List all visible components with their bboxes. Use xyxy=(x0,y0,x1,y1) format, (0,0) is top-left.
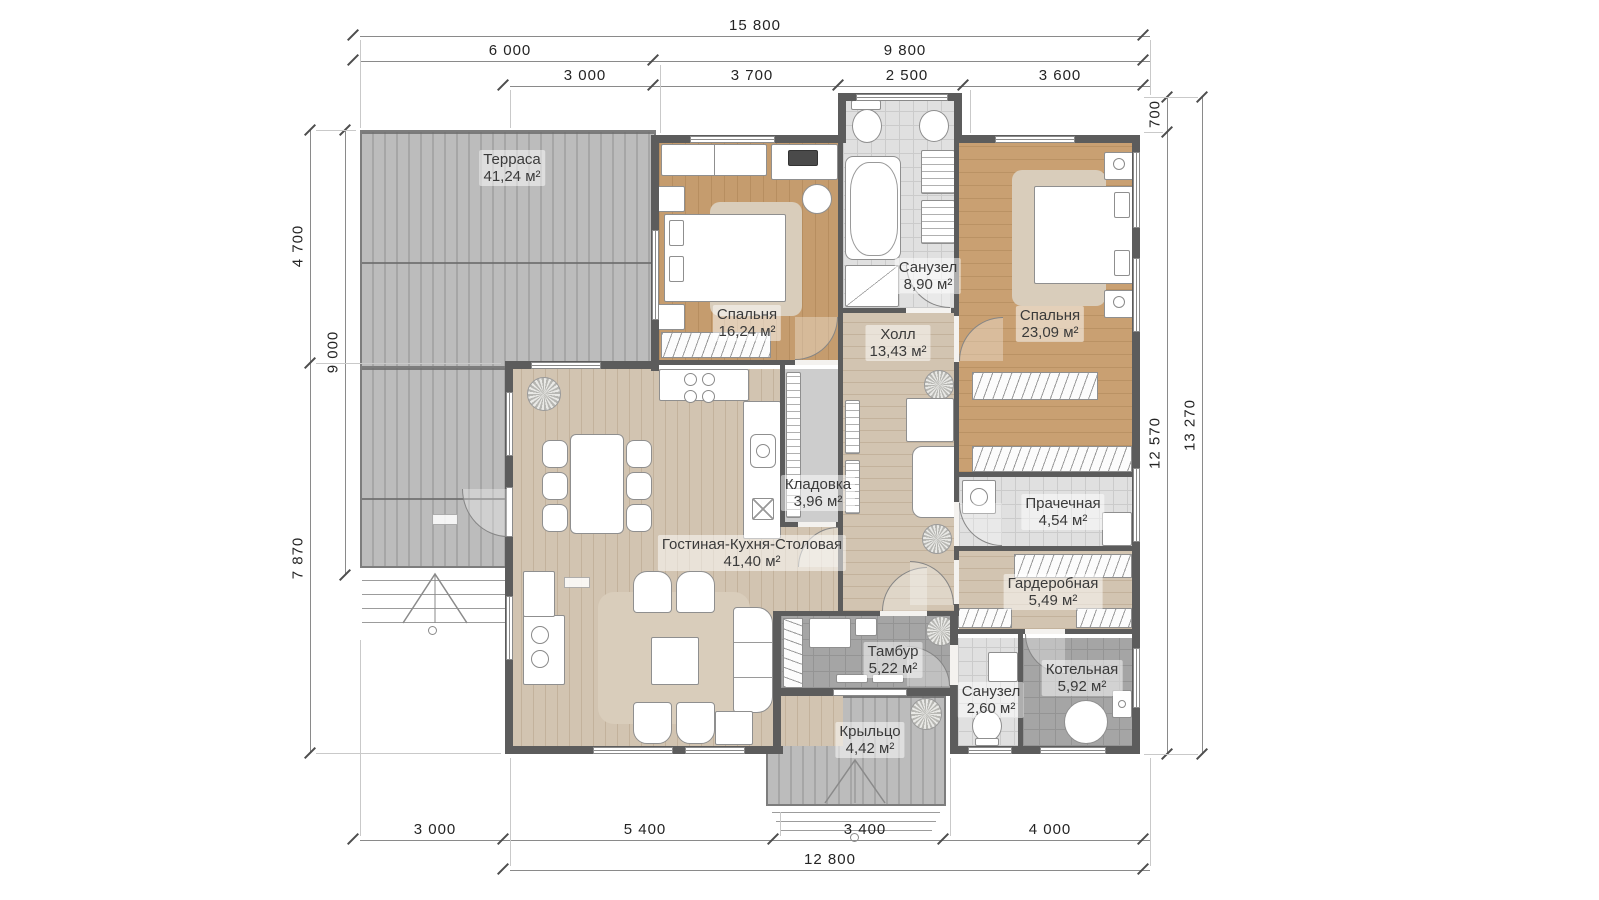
living-armchair xyxy=(633,702,672,744)
dimension-line xyxy=(1202,97,1203,754)
living-armchair xyxy=(676,702,715,744)
bedroom1-pillow xyxy=(669,220,684,246)
room-area: 8,90 м² xyxy=(899,276,957,293)
extension-line xyxy=(360,40,361,128)
stove-burner xyxy=(684,390,697,403)
bathroom1-cabinet xyxy=(921,200,955,244)
dim-tick xyxy=(1137,54,1149,66)
window xyxy=(652,230,659,320)
terrace-deck-lower xyxy=(360,366,507,568)
bedroom1-pillow xyxy=(669,256,684,282)
living-sofa xyxy=(733,607,773,713)
terrace-steps-arrow xyxy=(400,570,470,626)
room-name: Тамбур xyxy=(868,643,919,660)
wall xyxy=(773,611,781,754)
dim-tick xyxy=(937,833,949,845)
bathroom1-cabinet xyxy=(921,150,955,194)
dim-tick xyxy=(347,29,359,41)
floor-plan-page: { "plan": { "rooms": { "terrace": {"name… xyxy=(0,0,1599,900)
extension-line xyxy=(316,363,501,364)
extension-line xyxy=(316,753,501,754)
extension-line xyxy=(1144,132,1163,133)
room-label-laundry: Прачечная 4,54 м² xyxy=(1021,494,1104,530)
dimension-text: 3 400 xyxy=(844,821,887,838)
dimension-line xyxy=(1167,97,1168,754)
room-area: 4,42 м² xyxy=(839,740,900,757)
porch-step xyxy=(772,812,940,813)
room-name: Крыльцо xyxy=(839,723,900,740)
door-opening xyxy=(954,316,959,362)
room-area: 5,49 м² xyxy=(1008,592,1099,609)
extension-line xyxy=(360,640,361,836)
bidet-bowl xyxy=(919,110,949,142)
room-label-wardrobe: Гардеробная 5,49 м² xyxy=(1004,574,1103,610)
dimension-text: 4 000 xyxy=(1029,821,1072,838)
dining-chair xyxy=(542,440,568,468)
hall-armchair xyxy=(912,446,958,518)
dimension-text: 9 800 xyxy=(884,42,927,59)
window xyxy=(1133,152,1140,228)
dimension-line xyxy=(345,130,346,575)
elevation-marker xyxy=(564,577,590,588)
room-label-terrace: Терраса 41,24 м² xyxy=(479,150,545,186)
entry-door-opening xyxy=(833,689,907,696)
extension-line xyxy=(950,758,951,836)
dim-tick xyxy=(647,79,659,91)
room-label-porch: Крыльцо 4,42 м² xyxy=(835,722,904,758)
wall xyxy=(838,143,843,365)
room-label-hall: Холл 13,43 м² xyxy=(865,325,930,361)
boiler-tank xyxy=(1064,700,1108,744)
dim-tick xyxy=(767,833,779,845)
dining-table xyxy=(570,434,624,534)
porch-plant-right xyxy=(910,698,942,730)
window xyxy=(685,747,745,754)
living-plant xyxy=(527,377,561,411)
window xyxy=(1133,468,1140,542)
bathroom2-toilet-tank xyxy=(975,738,999,746)
wall xyxy=(954,546,1134,551)
dimension-text: 9 000 xyxy=(325,331,342,374)
dim-tick xyxy=(497,863,509,875)
stove-ring xyxy=(531,626,549,644)
window xyxy=(995,136,1075,143)
dim-tick xyxy=(497,833,509,845)
bedroom2-lamp xyxy=(1113,296,1125,308)
hall-cabinet xyxy=(906,398,954,442)
dim-tick xyxy=(957,79,969,91)
dim-tick xyxy=(497,79,509,91)
dimension-text: 4 700 xyxy=(290,225,307,268)
bedroom2-pillow xyxy=(1114,192,1130,218)
hall-plant-top xyxy=(924,370,954,400)
extension-line xyxy=(1150,758,1151,866)
wall xyxy=(773,611,958,616)
dimension-text: 3 000 xyxy=(564,67,607,84)
hall-plant-bottom xyxy=(922,524,952,554)
door-opening xyxy=(954,502,959,546)
room-label-bedroom2: Спальня 23,09 м² xyxy=(1016,306,1084,342)
fridge xyxy=(752,498,774,520)
dim-tick xyxy=(347,54,359,66)
side-table xyxy=(715,711,753,745)
dimension-text: 12 800 xyxy=(804,851,856,868)
room-label-bathroom2: Санузел 2,60 м² xyxy=(958,682,1024,718)
window xyxy=(531,362,601,369)
laundry-counter xyxy=(1102,512,1132,546)
dining-chair xyxy=(542,472,568,500)
bedroom2-pillow xyxy=(1114,250,1130,276)
door-opening xyxy=(798,522,836,527)
window xyxy=(593,747,673,754)
room-label-vestibule: Тамбур 5,22 м² xyxy=(864,642,923,678)
extension-line xyxy=(510,758,511,866)
living-armchair xyxy=(676,571,715,613)
dimension-text: 7 870 xyxy=(290,537,307,580)
window xyxy=(1133,258,1140,332)
door-opening xyxy=(795,360,838,365)
room-name: Спальня xyxy=(1020,307,1080,324)
toilet-bowl xyxy=(852,109,882,143)
stove-burner xyxy=(702,373,715,386)
dimension-text: 13 270 xyxy=(1182,399,1199,451)
wardrobe-rack-hatch xyxy=(1076,608,1132,628)
room-label-boiler: Котельная 5,92 м² xyxy=(1042,660,1123,696)
extension-line xyxy=(1150,40,1151,95)
room-area: 5,92 м² xyxy=(1046,678,1119,695)
dimension-text: 12 570 xyxy=(1147,417,1164,469)
extension-line xyxy=(316,130,356,131)
dim-tick xyxy=(1137,863,1149,875)
room-area: 41,40 м² xyxy=(662,553,842,570)
room-area: 2,60 м² xyxy=(962,700,1020,717)
bedroom1-nightstand xyxy=(657,186,685,212)
room-name: Котельная xyxy=(1046,661,1119,678)
room-name: Гардеробная xyxy=(1008,575,1099,592)
window xyxy=(506,392,513,456)
dimension-line xyxy=(360,61,1150,62)
extension-line xyxy=(660,65,661,133)
room-area: 13,43 м² xyxy=(869,343,926,360)
dimension-text: 3 700 xyxy=(731,67,774,84)
dimension-line xyxy=(510,86,1150,87)
window xyxy=(968,747,1012,754)
dining-chair xyxy=(626,504,652,532)
room-area: 41,24 м² xyxy=(483,168,541,185)
room-area: 4,54 м² xyxy=(1025,512,1100,529)
bedroom2-lamp xyxy=(1113,158,1125,170)
shower-tray xyxy=(845,265,899,307)
door-opening xyxy=(950,645,958,685)
dimension-text: 15 800 xyxy=(729,17,781,34)
dim-tick xyxy=(1137,833,1149,845)
bathtub-inner xyxy=(850,162,898,256)
dimension-text: 3 600 xyxy=(1039,67,1082,84)
bedroom1-closet xyxy=(661,144,767,176)
door-opening xyxy=(906,308,951,313)
dim-tick xyxy=(647,54,659,66)
room-name: Гостиная-Кухня-Столовая xyxy=(662,536,842,553)
window xyxy=(506,596,513,660)
porch-steps-arrow xyxy=(822,756,888,806)
hall-shelf xyxy=(845,400,860,454)
extension-line xyxy=(970,90,971,133)
bedroom1-computer xyxy=(788,150,818,166)
wardrobe-rack-hatch xyxy=(958,608,1012,628)
bathroom2-sink xyxy=(988,652,1018,682)
dimension-line xyxy=(310,130,311,753)
vestibule-box xyxy=(855,618,877,636)
room-name: Кладовка xyxy=(785,476,851,493)
stove-ring xyxy=(531,650,549,668)
living-armchair xyxy=(633,571,672,613)
dimension-line xyxy=(360,840,1150,841)
window xyxy=(1040,747,1106,754)
bedroom1-chair xyxy=(802,184,832,214)
terrace-marker-circle xyxy=(428,626,437,635)
room-name: Санузел xyxy=(899,259,957,276)
bedroom2-wardrobe-hatch xyxy=(972,446,1132,472)
window xyxy=(690,136,775,143)
room-name: Санузел xyxy=(962,683,1020,700)
bedroom2-wardrobe-hatch xyxy=(972,372,1098,400)
dining-chair xyxy=(626,440,652,468)
stove-burner xyxy=(684,373,697,386)
bedroom1-nightstand xyxy=(657,304,685,330)
room-label-bathroom1: Санузел 8,90 м² xyxy=(895,258,961,294)
window xyxy=(856,94,948,101)
coffee-table xyxy=(651,637,699,685)
kitchen-sink-bowl xyxy=(756,444,770,458)
room-name: Спальня xyxy=(717,306,777,323)
door-opening xyxy=(954,560,959,604)
room-label-pantry: Кладовка 3,96 м² xyxy=(781,475,855,511)
window xyxy=(1133,648,1140,708)
extension-line xyxy=(510,90,511,128)
room-name: Холл xyxy=(869,326,926,343)
living-counter-left xyxy=(523,571,555,617)
dimension-text: 6 000 xyxy=(489,42,532,59)
elevation-marker xyxy=(432,514,458,525)
dim-tick xyxy=(347,833,359,845)
room-area: 5,22 м² xyxy=(868,660,919,677)
extension-line xyxy=(1144,754,1198,755)
door-opening xyxy=(880,611,927,616)
dimension-text: 700 xyxy=(1147,100,1164,128)
dining-chair xyxy=(542,504,568,532)
room-name: Прачечная xyxy=(1025,495,1100,512)
stove-burner xyxy=(702,390,715,403)
room-area: 3,96 м² xyxy=(785,493,851,510)
dim-tick xyxy=(1137,79,1149,91)
vestibule-closet-hatch xyxy=(783,618,803,688)
dimension-text: 2 500 xyxy=(886,67,929,84)
wall xyxy=(954,472,1134,477)
boiler-unit-dial xyxy=(1118,700,1126,708)
room-label-bedroom1: Спальня 16,24 м² xyxy=(713,305,781,341)
room-area: 23,09 м² xyxy=(1020,324,1080,341)
room-name: Терраса xyxy=(483,151,541,168)
room-area: 16,24 м² xyxy=(717,323,777,340)
room-label-living: Гостиная-Кухня-Столовая 41,40 м² xyxy=(658,535,846,571)
extension-line xyxy=(1144,97,1198,98)
vestibule-bench xyxy=(809,618,851,648)
floor-plan: Терраса 41,24 м² Спальня 16,24 м² Санузе… xyxy=(0,0,1599,900)
dimension-text: 5 400 xyxy=(624,821,667,838)
dimension-text: 3 000 xyxy=(414,821,457,838)
dim-tick xyxy=(832,79,844,91)
extension-line xyxy=(780,812,781,836)
dim-tick xyxy=(1137,29,1149,41)
dimension-line xyxy=(360,36,1150,37)
dimension-line xyxy=(510,870,1150,871)
dining-chair xyxy=(626,472,652,500)
